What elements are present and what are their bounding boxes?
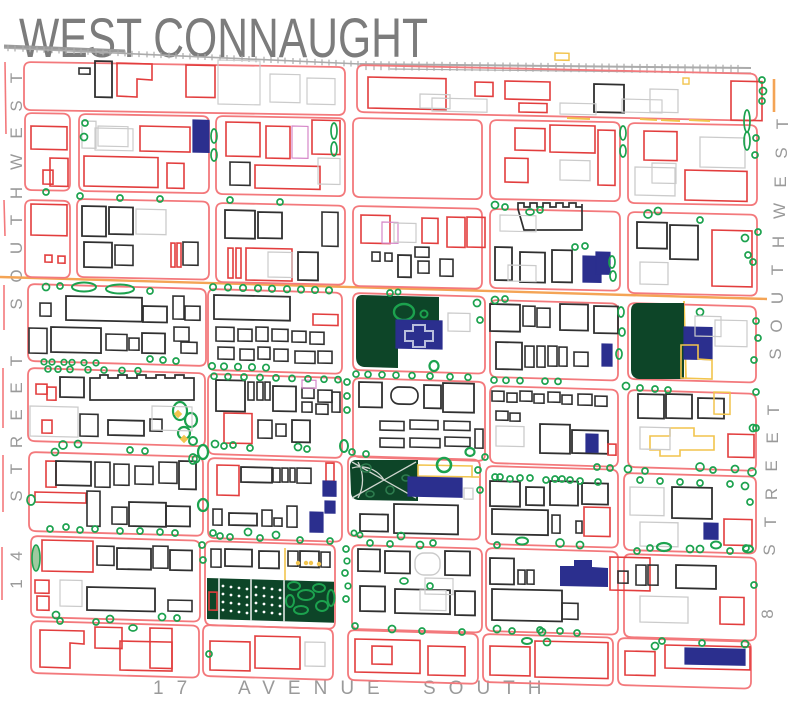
svg-text:W: W — [770, 203, 789, 219]
svg-text:8: 8 — [758, 609, 777, 618]
svg-text:H: H — [7, 187, 26, 199]
svg-text:E: E — [762, 460, 781, 471]
svg-text:S: S — [766, 348, 785, 359]
svg-text:E: E — [7, 127, 26, 138]
svg-text:E: E — [7, 382, 26, 393]
svg-text:O: O — [7, 269, 26, 282]
svg-text:S: S — [7, 490, 26, 501]
svg-text:17: 17 — [153, 678, 200, 699]
svg-text:U: U — [7, 242, 26, 254]
svg-text:T: T — [768, 265, 787, 275]
svg-text:T: T — [773, 119, 792, 129]
svg-text:O: O — [767, 319, 786, 332]
svg-text:4: 4 — [7, 551, 26, 560]
svg-text:T: T — [764, 405, 783, 415]
svg-text:T: T — [7, 464, 26, 474]
svg-text:SOUTH: SOUTH — [423, 678, 555, 699]
svg-text:E: E — [763, 432, 782, 443]
svg-text:S: S — [772, 147, 791, 158]
svg-text:E: E — [771, 176, 790, 187]
svg-text:W: W — [7, 154, 26, 170]
svg-text:R: R — [7, 436, 26, 448]
svg-text:T: T — [761, 517, 780, 527]
svg-text:R: R — [762, 488, 781, 500]
svg-text:E: E — [7, 409, 26, 420]
svg-text:T: T — [7, 356, 26, 366]
svg-text:U: U — [768, 292, 787, 304]
svg-text:1: 1 — [7, 579, 26, 588]
svg-text:S: S — [7, 298, 26, 309]
svg-text:S: S — [760, 544, 779, 555]
svg-text:H: H — [769, 236, 788, 248]
svg-text:T: T — [7, 215, 26, 225]
